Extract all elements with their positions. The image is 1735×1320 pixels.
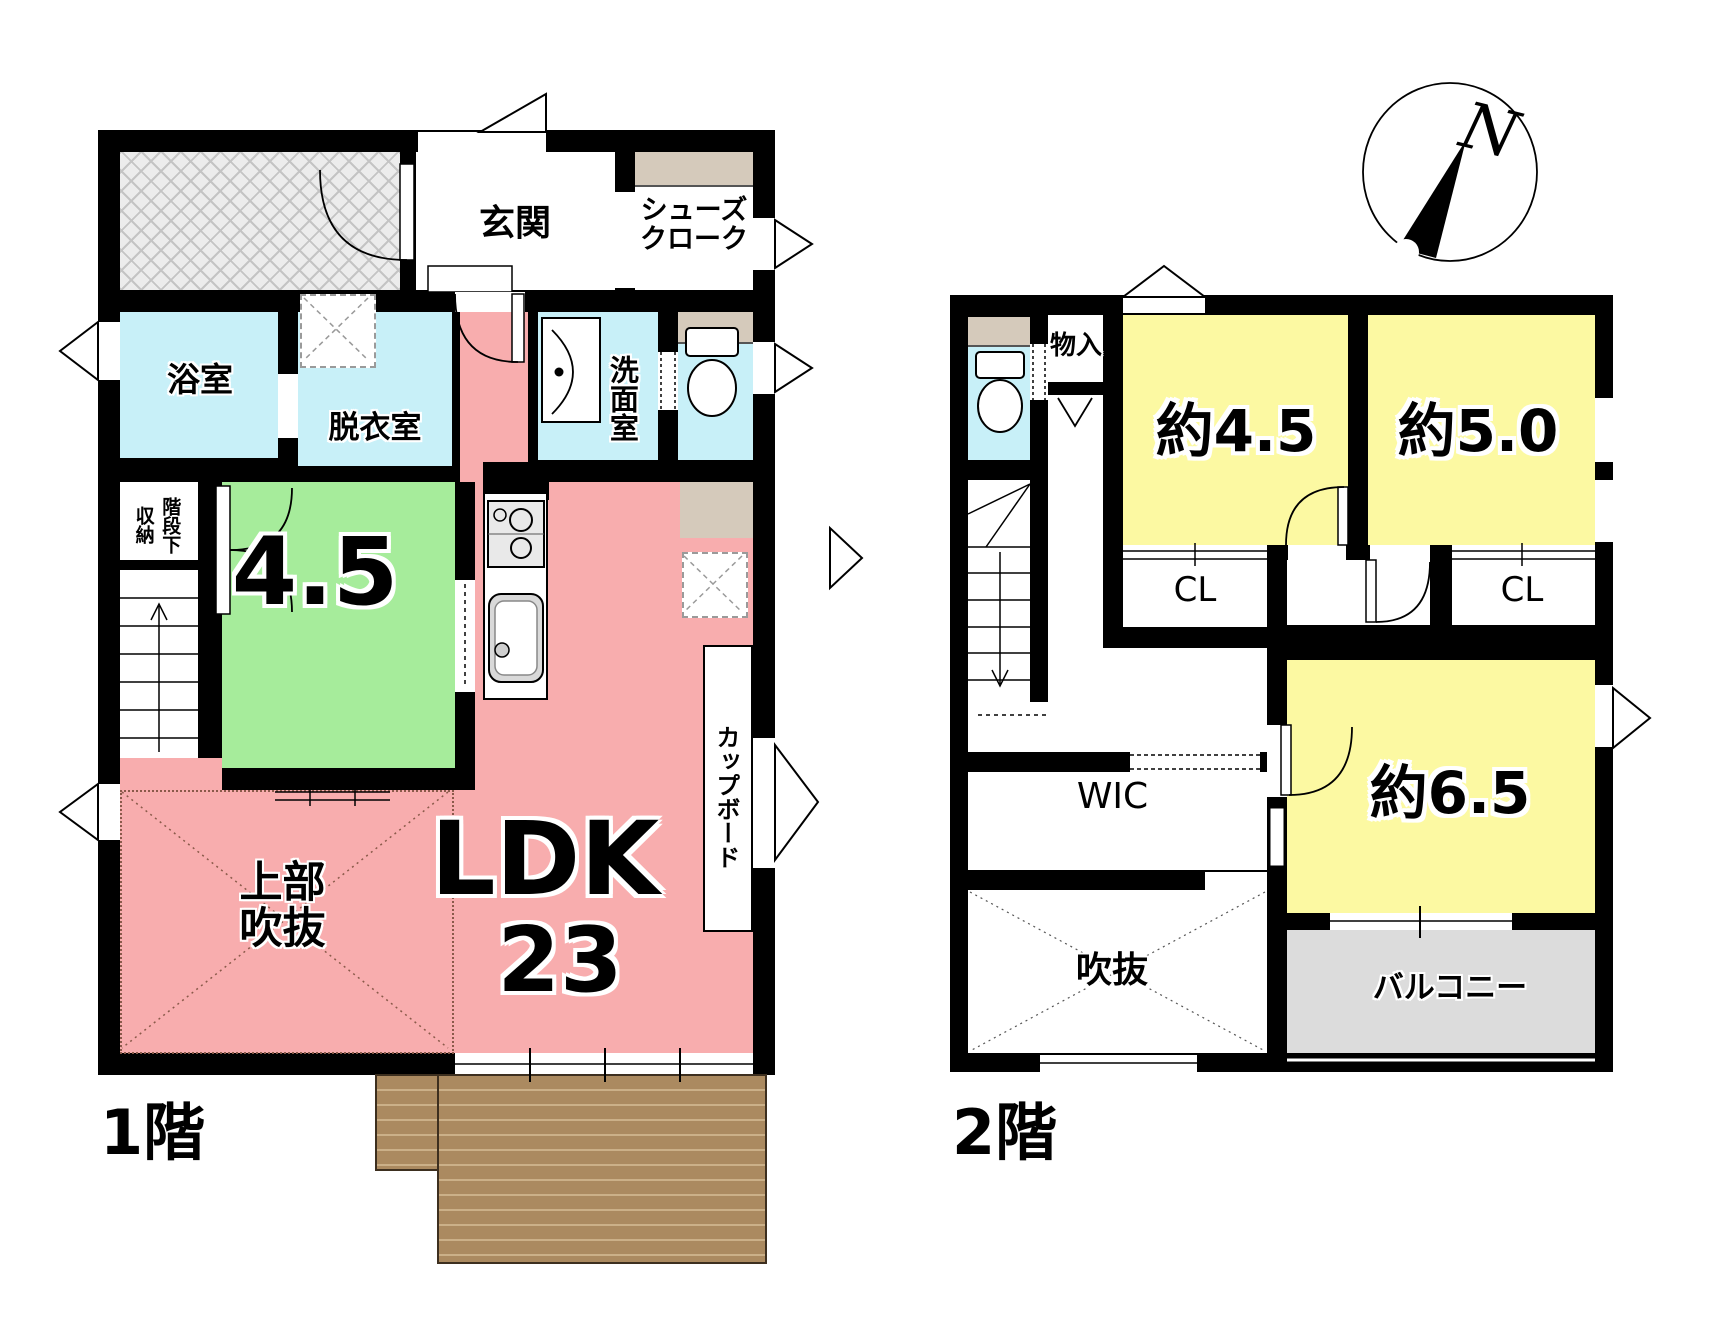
porch-area (120, 152, 400, 290)
label-atrium-2f: 吹抜 (1042, 952, 1182, 991)
label-shoes-closet: シューズ クローク (628, 196, 760, 254)
washing-machine-space (300, 294, 376, 368)
roof-vent-icon (1123, 266, 1205, 297)
ldk-stairs-foot (120, 758, 222, 790)
shoes-closet-shelf (635, 152, 753, 187)
label-closet-b: CL (1487, 572, 1557, 609)
compass-icon: N (1363, 83, 1537, 265)
label-under-stairs: 階段下 収納 (130, 492, 183, 558)
label-ldk: LDK (420, 805, 670, 915)
label-bedroom50: 約5.0 (1372, 400, 1584, 463)
hall-2f (1048, 395, 1103, 752)
toilet-2f-shelf (968, 317, 1030, 347)
wood-deck-main (437, 1074, 767, 1264)
label-washroom: 洗面室 (606, 328, 637, 468)
hall-2f-mid (1103, 648, 1267, 752)
toilet-1f-shelf (678, 312, 753, 344)
label-bedroom65: 約6.5 (1345, 762, 1555, 825)
label-ldk-size: 23 (450, 912, 670, 1009)
room-washroom (538, 312, 658, 460)
ldk-south-window (455, 1053, 753, 1075)
label-cupboard: カップボード (712, 692, 738, 902)
tatami-right-wall-upper (455, 482, 475, 580)
hall-2f-lower (968, 702, 1103, 752)
label-atrium-upper: 上部 吹抜 (195, 860, 370, 953)
storage-stairs-divider (120, 560, 198, 570)
label-bathroom: 浴室 (130, 362, 270, 398)
tatami-bottom-wall (222, 768, 475, 790)
label-monoire: 物入 (1042, 332, 1110, 360)
wood-deck-step (375, 1074, 441, 1171)
label-dressing: 脱衣室 (300, 412, 450, 445)
stairs-right-wall (198, 570, 222, 730)
genkan-door-fan-icon (480, 94, 546, 132)
ldk-corridor (460, 312, 528, 482)
north-needle-icon (1398, 140, 1466, 258)
pantry-counter (680, 482, 753, 538)
kitchen-island (483, 492, 548, 700)
label-bedroom45: 約4.5 (1130, 400, 1342, 463)
compass-north-label: N (1451, 88, 1527, 174)
closet-hall-pocket (1287, 560, 1430, 625)
stairwell-arrow-icon (830, 528, 862, 588)
stairs-1f (120, 570, 198, 758)
label-balcony: バルコニー (1340, 972, 1560, 1005)
refrigerator-space (682, 552, 748, 618)
label-floor2: 2階 (952, 1100, 1152, 1167)
label-floor1: 1階 (100, 1100, 300, 1167)
floorplan-canvas: N 玄関 シューズ クローク 浴室 脱衣室 洗面室 階段下 収納 4.5 LDK… (0, 0, 1735, 1320)
room-toilet-2f (968, 345, 1030, 460)
label-closet-a: CL (1160, 572, 1230, 609)
label-genkan: 玄関 (430, 205, 600, 244)
stairs-2f (968, 480, 1030, 702)
label-tatami-size: 4.5 (225, 522, 405, 624)
label-wic: WIC (1040, 778, 1185, 817)
